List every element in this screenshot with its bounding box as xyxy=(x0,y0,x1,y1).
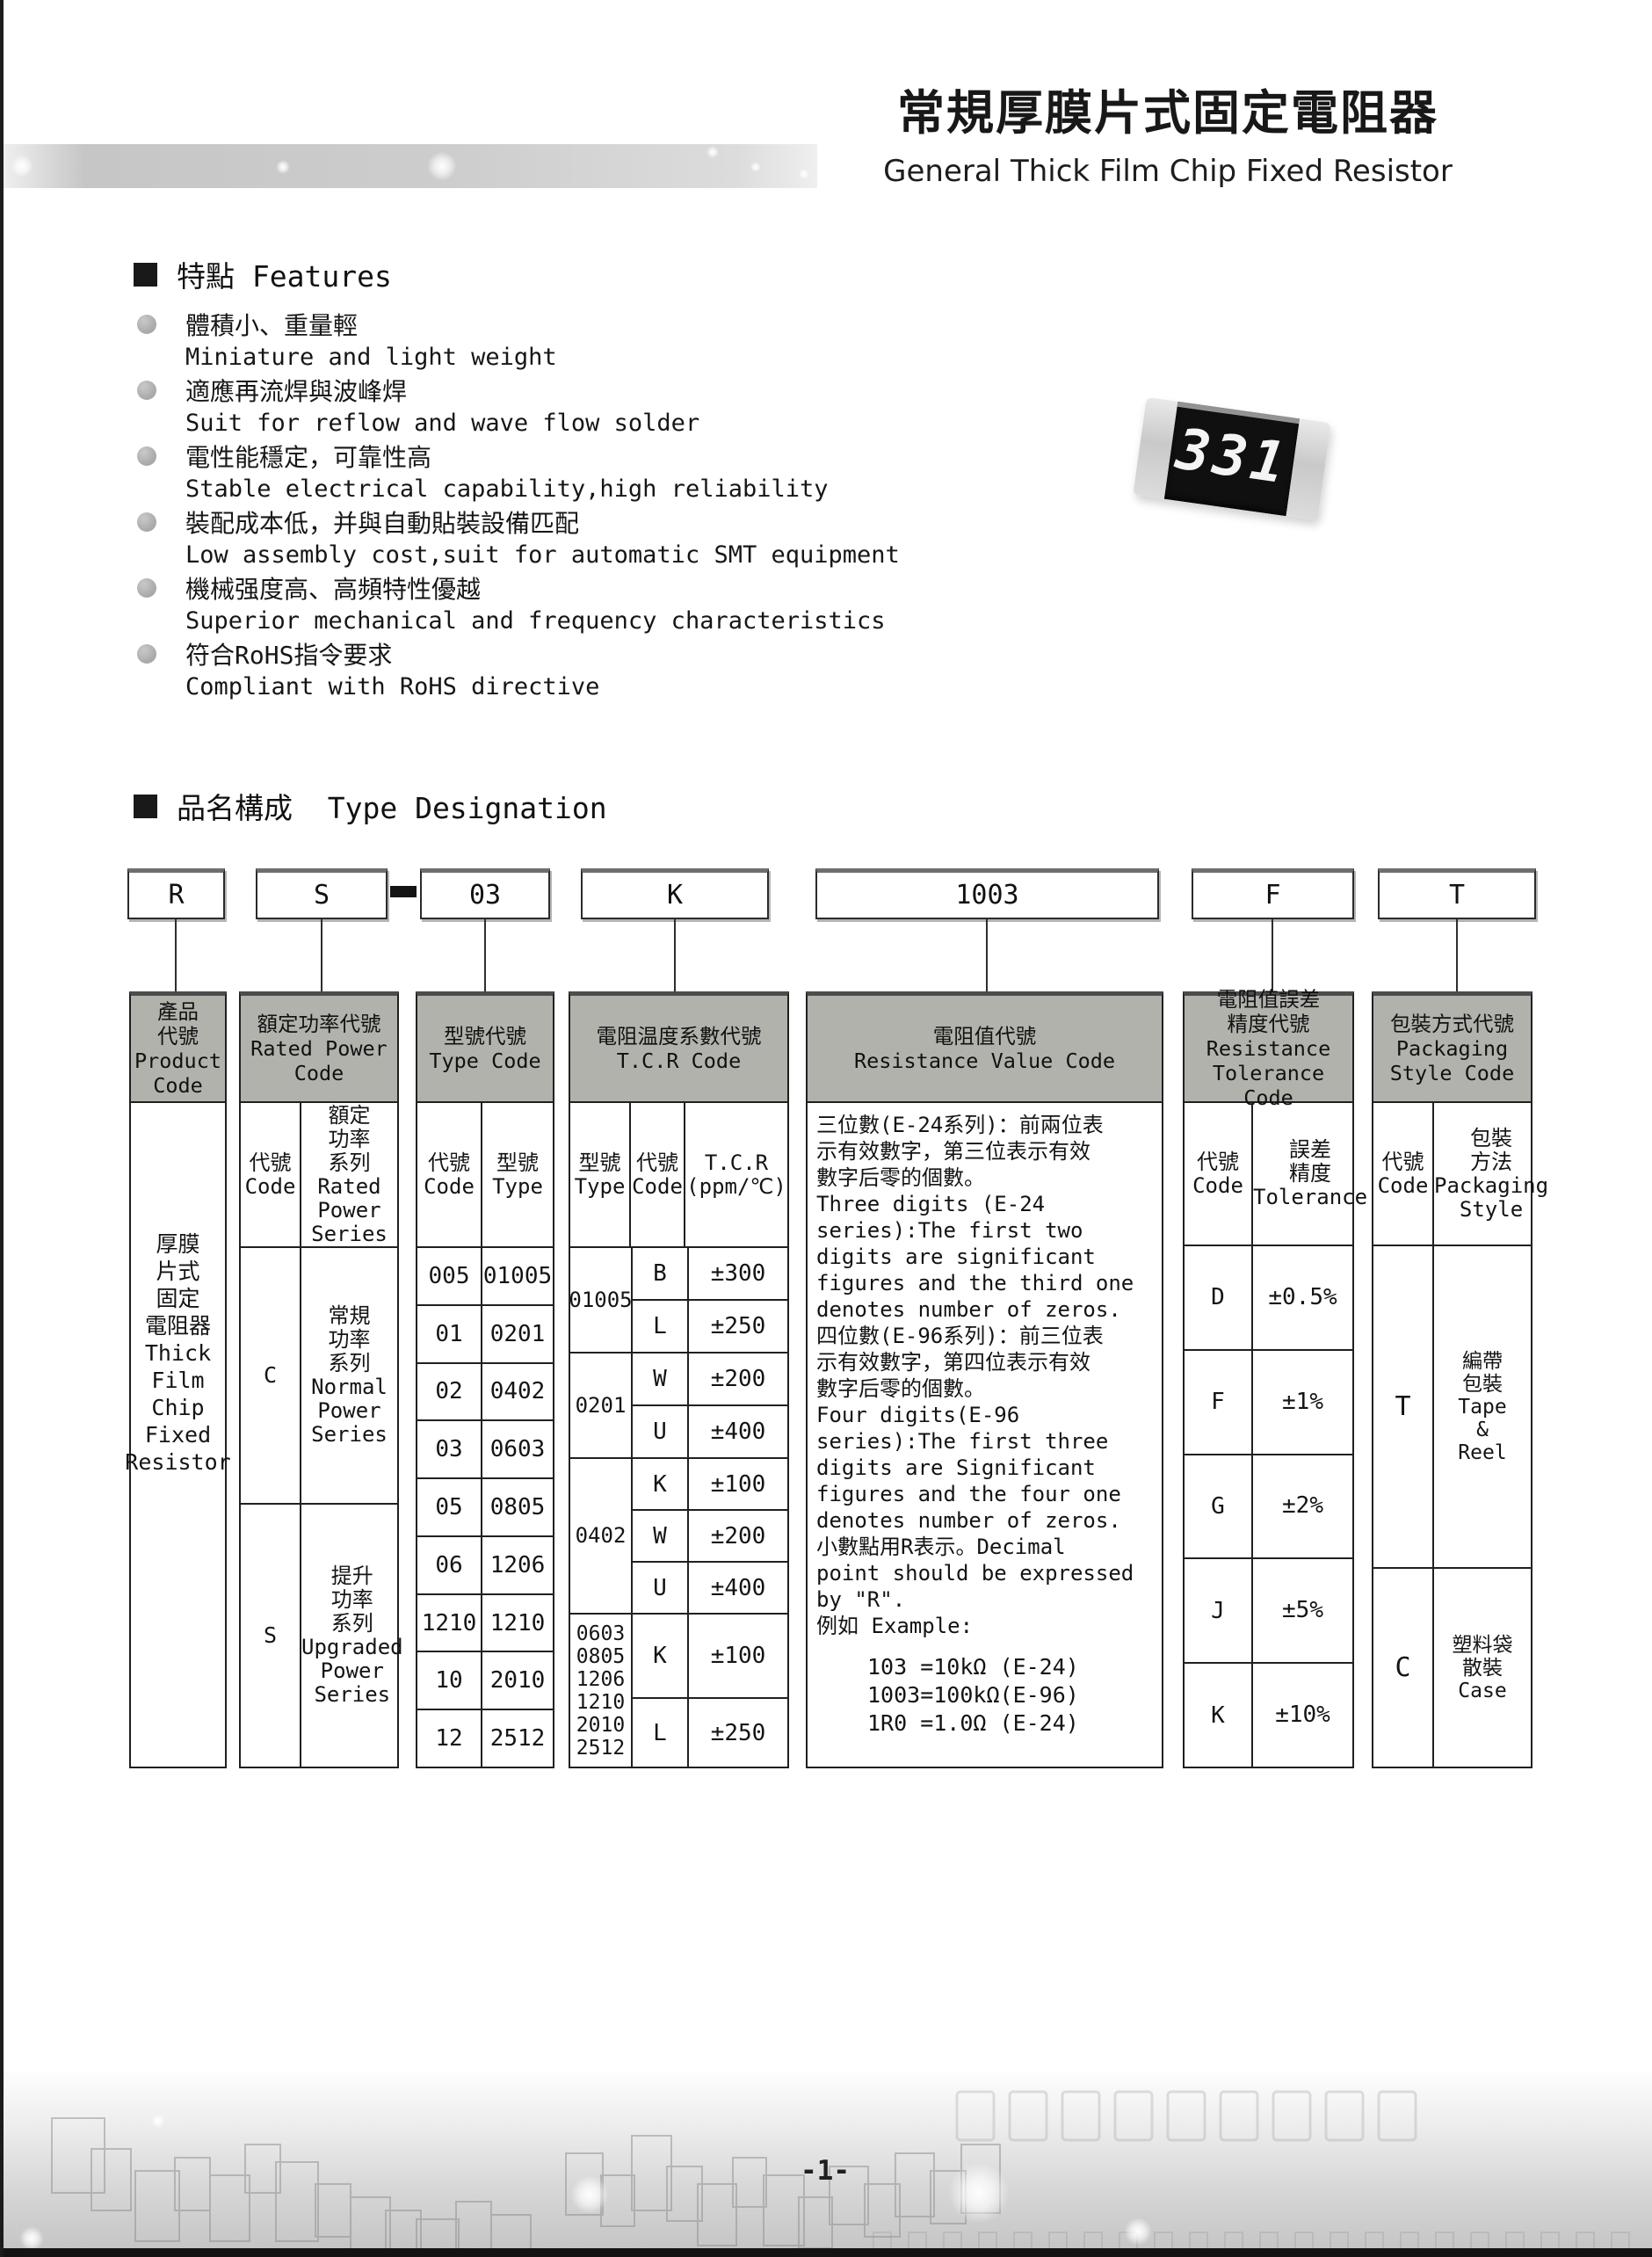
features-heading: 特點 Features xyxy=(134,253,392,295)
feature-en: Superior mechanical and frequency charac… xyxy=(137,605,1192,637)
type-size-cell: 1210 xyxy=(482,1595,553,1651)
code-box-resistance: 1003 xyxy=(815,868,1159,919)
feature-zh: 裝配成本低，并與自動貼裝設備匹配 xyxy=(185,504,579,540)
tolerance-code-cell: K xyxy=(1185,1664,1253,1767)
connector-line xyxy=(175,919,177,991)
type-size-cell: 01005 xyxy=(482,1248,553,1304)
sparkle-icon xyxy=(570,2175,609,2214)
table-column-tcr: 電阻温度系數代號 T.C.R Code 型號 Type 代號 Code T.C.… xyxy=(569,991,789,1768)
code-box-tolerance: F xyxy=(1192,868,1354,919)
tcr-type-cell: 0201 xyxy=(570,1353,633,1457)
power-series-cell: 提升 功率 系列 Upgraded Power Series xyxy=(301,1505,403,1767)
sparkle-icon xyxy=(799,169,809,179)
resistance-description: 三位數(E-24系列)：前兩位表 示有效數字，第三位表示有效 數字后零的個數。 … xyxy=(808,1103,1162,1738)
tcr-value-cell: ±250 xyxy=(689,1301,787,1352)
header-decoration-bar xyxy=(4,144,817,188)
type-code-cell: 12 xyxy=(417,1710,482,1767)
subheader-style: 包裝 方法 Packaging Style xyxy=(1434,1103,1548,1245)
code-box-power: S xyxy=(256,868,388,919)
connector-line xyxy=(1272,919,1273,991)
subheader-tcr: T.C.R (ppm/℃) xyxy=(685,1103,787,1246)
type-code-cell: 02 xyxy=(417,1364,482,1420)
table-row: C 塑料袋 散裝 Case xyxy=(1373,1569,1531,1767)
tcr-value-cell: ±200 xyxy=(689,1353,787,1404)
type-size-cell: 1206 xyxy=(482,1537,553,1593)
feature-item: 機械强度高、高頻特性優越 Superior mechanical and fre… xyxy=(137,571,1192,637)
tcr-value-cell: ±400 xyxy=(689,1406,787,1457)
tcr-group: 0603 0805 1206 1210 2010 2512 K±100 L±25… xyxy=(570,1615,787,1767)
bullet-icon xyxy=(137,578,156,598)
type-size-cell: 0805 xyxy=(482,1479,553,1535)
tolerance-value-cell: ±1% xyxy=(1253,1351,1352,1454)
page-title-en: General Thick Film Chip Fixed Resistor xyxy=(860,154,1475,189)
table-row: C 常規 功率 系列 Normal Power Series xyxy=(241,1248,397,1505)
connector-line xyxy=(321,919,322,991)
tolerance-code-cell: J xyxy=(1185,1559,1253,1662)
packaging-code-cell: C xyxy=(1373,1569,1434,1767)
feature-zh: 符合RoHS指令要求 xyxy=(185,636,392,671)
table-row: 010201 xyxy=(417,1306,553,1364)
type-code-cell: 03 xyxy=(417,1421,482,1477)
table-column-resistance: 電阻值代號 Resistance Value Code 三位數(E-24系列)：… xyxy=(806,991,1163,1768)
sparkle-icon xyxy=(750,162,761,172)
tolerance-value-cell: ±10% xyxy=(1253,1664,1352,1767)
type-code-cell: 05 xyxy=(417,1479,482,1535)
tcr-type-cell: 0402 xyxy=(570,1459,633,1613)
tcr-code-cell: U xyxy=(633,1406,689,1457)
feature-zh: 機械强度高、高頻特性優越 xyxy=(185,570,481,606)
subheader-type: 型號 Type xyxy=(570,1103,631,1246)
tcr-value-cell: ±250 xyxy=(689,1699,787,1767)
tcr-value-cell: ±300 xyxy=(689,1248,787,1299)
feature-en: Compliant with RoHS directive xyxy=(137,671,1192,703)
product-description-cell: 厚膜 片式 固定 電阻器 Thick Film Chip Fixed Resis… xyxy=(125,1103,230,1476)
connector-line xyxy=(1456,919,1458,991)
tcr-code-cell: U xyxy=(633,1563,689,1613)
subheader-code: 代號 Code xyxy=(241,1103,301,1246)
table-row: 122512 xyxy=(417,1710,553,1767)
page-title-zh: 常規厚膜片式固定電阻器 xyxy=(860,74,1475,143)
tolerance-code-cell: F xyxy=(1185,1351,1253,1454)
subheader-code: 代號 Code xyxy=(1185,1103,1253,1245)
sparkle-icon xyxy=(11,155,33,178)
feature-item: 電性能穩定，可靠性高 Stable electrical capability,… xyxy=(137,439,1192,505)
sparkle-icon xyxy=(1124,2217,1152,2246)
tcr-code-cell: L xyxy=(633,1301,689,1352)
type-code-cell: 10 xyxy=(417,1652,482,1709)
tcr-value-cell: ±400 xyxy=(689,1563,787,1613)
column-header: 型號代號 Type Code xyxy=(416,991,554,1103)
bullet-icon xyxy=(137,381,156,400)
footer-decoration-band: -1- xyxy=(4,2070,1652,2257)
table-column-packaging: 包裝方式代號 Packaging Style Code 代號 Code 包裝 方… xyxy=(1372,991,1532,1768)
tcr-code-cell: W xyxy=(633,1511,689,1561)
resistor-body: 331 xyxy=(1164,402,1300,516)
datasheet-page: 常規厚膜片式固定電阻器 General Thick Film Chip Fixe… xyxy=(0,0,1652,2257)
table-row: J±5% xyxy=(1185,1559,1352,1664)
table-row: 102010 xyxy=(417,1652,553,1710)
resistor-marking: 331 xyxy=(1172,417,1293,497)
tcr-code-cell: K xyxy=(633,1459,689,1509)
subheader-tolerance: 誤差 精度 Tolerance xyxy=(1253,1103,1367,1245)
column-header: 包裝方式代號 Packaging Style Code xyxy=(1372,991,1532,1103)
column-header: 電阻值誤差 精度代號 Resistance Tolerance Code xyxy=(1183,991,1354,1103)
feature-zh: 電性能穩定，可靠性高 xyxy=(185,439,431,474)
subheader-series: 額定 功率 系列 Rated Power Series xyxy=(301,1103,397,1246)
sparkle-icon xyxy=(19,2226,44,2251)
sparkle-icon xyxy=(706,146,719,158)
tcr-group: 0201 W±200 U±400 xyxy=(570,1353,787,1459)
features-list: 體積小、重量輕 Miniature and light weight 適應再流焊… xyxy=(137,308,1192,703)
type-size-cell: 0402 xyxy=(482,1364,553,1420)
table-row: 061206 xyxy=(417,1537,553,1595)
sparkle-icon xyxy=(151,2114,165,2128)
sparkle-icon xyxy=(427,151,457,181)
tcr-code-cell: K xyxy=(633,1615,689,1697)
column-header: 電阻温度系數代號 T.C.R Code xyxy=(569,991,789,1103)
table-row: D±0.5% xyxy=(1185,1246,1352,1351)
table-column-product: 產品 代號 Product Code 厚膜 片式 固定 電阻器 Thick Fi… xyxy=(129,991,227,1768)
table-row: G±2% xyxy=(1185,1455,1352,1560)
type-code-cell: 005 xyxy=(417,1248,482,1304)
code-box-type: 03 xyxy=(420,868,550,919)
column-header: 產品 代號 Product Code xyxy=(129,991,227,1103)
page-bottom-edge xyxy=(4,2248,1652,2257)
tcr-type-cell: 01005 xyxy=(570,1248,633,1352)
table-row: 050805 xyxy=(417,1479,553,1537)
code-box-packaging: T xyxy=(1378,868,1536,919)
table-row: 00501005 xyxy=(417,1248,553,1306)
type-designation-heading-label: 品名構成 Type Designation xyxy=(177,785,607,827)
bullet-icon xyxy=(137,512,156,532)
subheader-code: 代號 Code xyxy=(417,1103,482,1246)
power-series-cell: 常規 功率 系列 Normal Power Series xyxy=(301,1248,397,1503)
feature-item: 體積小、重量輕 Miniature and light weight xyxy=(137,308,1192,374)
tcr-code-cell: B xyxy=(633,1248,689,1299)
power-code-cell: C xyxy=(241,1248,301,1503)
tcr-group: 0402 K±100 W±200 U±400 xyxy=(570,1459,787,1615)
column-header: 電阻值代號 Resistance Value Code xyxy=(806,991,1163,1103)
type-size-cell: 2010 xyxy=(482,1652,553,1709)
type-designation-heading: 品名構成 Type Designation xyxy=(134,785,607,827)
connector-line xyxy=(986,919,988,991)
subheader-code: 代號 Code xyxy=(1373,1103,1434,1245)
packaging-style-cell: 塑料袋 散裝 Case xyxy=(1434,1569,1531,1767)
page-title: 常規厚膜片式固定電阻器 General Thick Film Chip Fixe… xyxy=(860,74,1475,189)
subheader-code: 代號 Code xyxy=(631,1103,685,1246)
tcr-code-cell: W xyxy=(633,1353,689,1404)
table-column-rated-power: 額定功率代號 Rated Power Code 代號 Code 額定 功率 系列… xyxy=(239,991,399,1768)
table-row: 030603 xyxy=(417,1421,553,1479)
table-row: 020402 xyxy=(417,1364,553,1422)
tcr-group: 01005 B±300 L±250 xyxy=(570,1248,787,1353)
type-size-cell: 2512 xyxy=(482,1710,553,1767)
table-column-type: 型號代號 Type Code 代號 Code 型號 Type 00501005 … xyxy=(416,991,554,1768)
tcr-value-cell: ±100 xyxy=(689,1459,787,1509)
code-box-product: R xyxy=(127,868,225,919)
tolerance-value-cell: ±5% xyxy=(1253,1559,1352,1662)
sparkle-icon xyxy=(276,160,290,174)
tcr-type-cell: 0603 0805 1206 1210 2010 2512 xyxy=(570,1615,633,1767)
tcr-code-cell: L xyxy=(633,1699,689,1767)
section-square-icon xyxy=(134,795,157,818)
connector-line xyxy=(484,919,486,991)
bullet-icon xyxy=(137,644,156,664)
tcr-value-cell: ±100 xyxy=(689,1615,787,1697)
power-code-cell: S xyxy=(241,1505,301,1767)
table-row: T 編帶 包裝 Tape & Reel xyxy=(1373,1246,1531,1569)
table-column-tolerance: 電阻值誤差 精度代號 Resistance Tolerance Code 代號 … xyxy=(1183,991,1354,1768)
feature-en: Suit for reflow and wave flow solder xyxy=(137,407,1192,439)
tolerance-value-cell: ±2% xyxy=(1253,1455,1352,1558)
feature-item: 裝配成本低，并與自動貼裝設備匹配 Low assembly cost,suit … xyxy=(137,505,1192,571)
sparkle-icon xyxy=(948,2162,1010,2224)
tolerance-code-cell: D xyxy=(1185,1246,1253,1349)
column-header: 額定功率代號 Rated Power Code xyxy=(239,991,399,1103)
type-code-cell: 01 xyxy=(417,1306,482,1362)
table-row: S 提升 功率 系列 Upgraded Power Series xyxy=(241,1505,397,1767)
connector-line xyxy=(674,919,676,991)
feature-en: Stable electrical capability,high reliab… xyxy=(137,473,1192,505)
feature-zh: 體積小、重量輕 xyxy=(185,307,358,342)
features-heading-label: 特點 Features xyxy=(177,253,392,295)
packaging-code-cell: T xyxy=(1373,1246,1434,1567)
bullet-icon xyxy=(137,446,156,466)
subheader-type: 型號 Type xyxy=(482,1103,553,1246)
tolerance-code-cell: G xyxy=(1185,1455,1253,1558)
resistance-text: 三位數(E-24系列)：前兩位表 示有效數字，第三位表示有效 數字后零的個數。 … xyxy=(816,1113,1134,1638)
packaging-style-cell: 編帶 包裝 Tape & Reel xyxy=(1434,1246,1531,1567)
resistance-examples: 103 =10kΩ (E-24) 1003=100kΩ(E-96) 1R0 =1… xyxy=(816,1653,1155,1738)
tcr-value-cell: ±200 xyxy=(689,1511,787,1561)
feature-item: 適應再流焊與波峰焊 Suit for reflow and wave flow … xyxy=(137,374,1192,439)
tolerance-value-cell: ±0.5% xyxy=(1253,1246,1352,1349)
page-number: -1- xyxy=(768,2155,882,2187)
code-box-tcr: K xyxy=(581,868,769,919)
type-size-cell: 0201 xyxy=(482,1306,553,1362)
feature-en: Miniature and light weight xyxy=(137,341,1192,374)
feature-en: Low assembly cost,suit for automatic SMT… xyxy=(137,539,1192,571)
section-square-icon xyxy=(134,263,157,287)
type-size-cell: 0603 xyxy=(482,1421,553,1477)
type-code-cell: 06 xyxy=(417,1537,482,1593)
feature-item: 符合RoHS指令要求 Compliant with RoHS directive xyxy=(137,637,1192,703)
feature-zh: 適應再流焊與波峰焊 xyxy=(185,373,407,408)
table-row: F±1% xyxy=(1185,1351,1352,1455)
type-code-cell: 1210 xyxy=(417,1595,482,1651)
bullet-icon xyxy=(137,315,156,334)
code-separator-dash xyxy=(390,886,417,897)
table-row: K±10% xyxy=(1185,1664,1352,1767)
table-row: 12101210 xyxy=(417,1595,553,1653)
